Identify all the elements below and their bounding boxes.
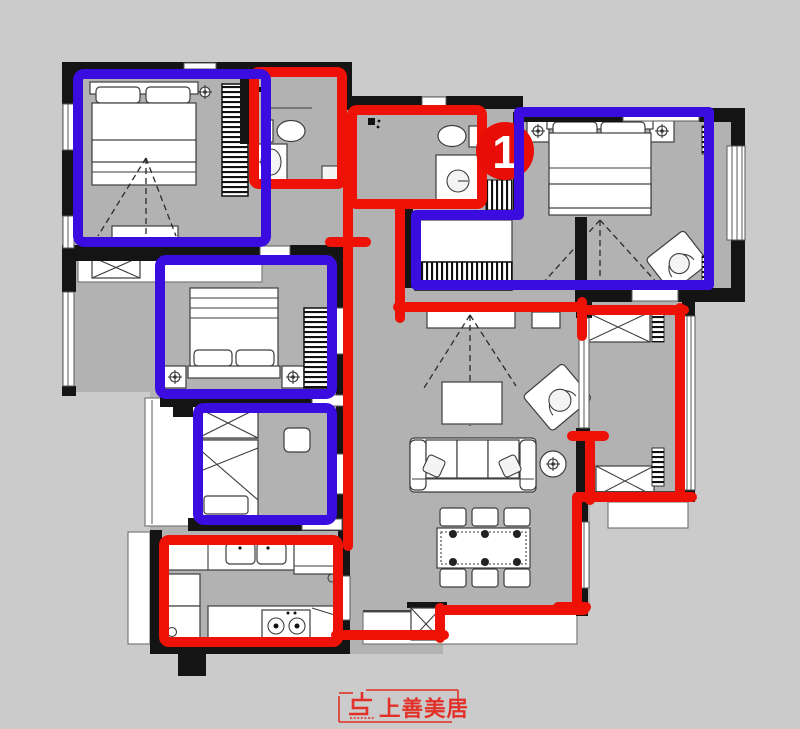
toilet-icon-2 bbox=[438, 126, 480, 148]
cabinet-icon bbox=[586, 312, 650, 342]
floor-plan-svg: 1 上善美居 bbox=[0, 0, 800, 729]
sofa-icon bbox=[410, 438, 536, 492]
coffee-table-icon bbox=[442, 382, 502, 424]
ledge-west-of-kitchen bbox=[128, 532, 150, 644]
logo-monogram-icon bbox=[349, 692, 372, 714]
tv-bench-icon bbox=[427, 310, 515, 328]
washbasin-icon-2 bbox=[436, 155, 483, 205]
closet-shelf-icon bbox=[415, 220, 512, 262]
round-table-icon bbox=[540, 451, 566, 477]
single-bed-icon bbox=[198, 440, 258, 518]
stove-icon bbox=[262, 610, 310, 640]
cabinet-icon bbox=[164, 574, 200, 606]
side-cabinet-icon bbox=[532, 312, 560, 328]
wardrobe-icon bbox=[486, 180, 512, 210]
bed-icon bbox=[188, 288, 280, 378]
side-table-icon bbox=[284, 428, 310, 452]
logo-text: 上善美居 bbox=[379, 696, 469, 721]
wardrobe-icon bbox=[304, 308, 330, 388]
floor-plan-image: 1 上善美居 bbox=[0, 0, 800, 729]
washer-icon bbox=[164, 606, 200, 640]
washbasin-icon bbox=[256, 144, 287, 181]
brand-logo: 上善美居 bbox=[339, 690, 469, 722]
marker-badge: 1 bbox=[476, 122, 534, 180]
dining-set bbox=[437, 508, 530, 587]
ledge-below-balcony bbox=[608, 502, 688, 528]
badge-number: 1 bbox=[492, 126, 518, 178]
